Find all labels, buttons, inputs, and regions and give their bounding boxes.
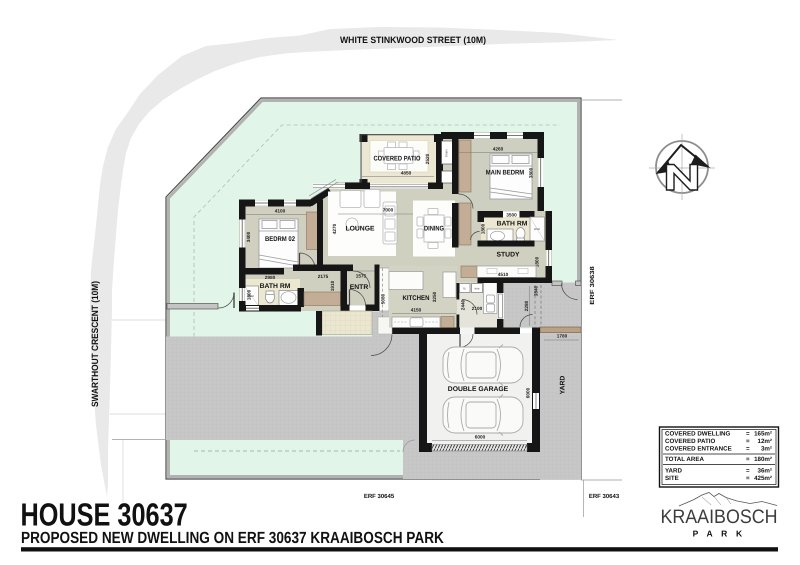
svg-text:=: = (746, 446, 750, 453)
svg-text:BEDRM 02: BEDRM 02 (265, 236, 295, 243)
svg-text:SWARTHOUT CRESCENT (10M): SWARTHOUT CRESCENT (10M) (90, 281, 100, 407)
svg-text:HOUSE 30637: HOUSE 30637 (21, 497, 188, 533)
svg-text:1800: 1800 (481, 223, 486, 234)
svg-text:3400: 3400 (246, 231, 251, 242)
svg-text:LOUNGE: LOUNGE (345, 226, 375, 233)
svg-text:6000: 6000 (475, 435, 486, 440)
svg-text:YARD: YARD (665, 468, 682, 475)
svg-text:=: = (746, 431, 750, 438)
svg-text:YARD: YARD (560, 376, 567, 395)
svg-text:1780: 1780 (557, 334, 568, 339)
svg-text:WHITE STINKWOOD STREET (10M): WHITE STINKWOOD STREET (10M) (340, 35, 486, 45)
svg-text:BATH RM: BATH RM (260, 283, 291, 290)
svg-text:wm: wm (475, 287, 480, 291)
svg-text:linen: linen (445, 149, 449, 156)
svg-text:3840: 3840 (534, 285, 539, 296)
svg-text:4150: 4150 (411, 308, 422, 313)
svg-text:2440: 2440 (461, 299, 466, 310)
svg-text:3800: 3800 (529, 167, 534, 178)
svg-text:=: = (746, 468, 750, 475)
svg-text:425m²: 425m² (754, 475, 772, 482)
svg-text:SITE: SITE (665, 475, 679, 482)
svg-text:DINING: DINING (424, 226, 444, 233)
svg-text:COVERED PATIO: COVERED PATIO (665, 438, 715, 445)
svg-text:=: = (746, 475, 750, 482)
svg-text:1910: 1910 (330, 280, 335, 291)
svg-text:=: = (746, 438, 750, 445)
svg-text:ERF 30638: ERF 30638 (589, 265, 596, 304)
svg-text:5080: 5080 (381, 293, 386, 304)
svg-text:6000: 6000 (526, 387, 531, 398)
svg-text:4260: 4260 (493, 147, 504, 152)
svg-text:4270: 4270 (332, 223, 337, 234)
svg-text:1800: 1800 (247, 289, 252, 300)
svg-text:4510: 4510 (498, 272, 509, 277)
svg-text:3250: 3250 (432, 291, 437, 302)
svg-text:1800: 1800 (535, 256, 540, 267)
svg-text:COVERED PATIO: COVERED PATIO (374, 156, 421, 163)
svg-text:4850: 4850 (401, 171, 412, 176)
svg-text:MAIN BEDRM: MAIN BEDRM (486, 170, 525, 177)
svg-text:2280: 2280 (524, 300, 529, 311)
svg-text:ERF 30643: ERF 30643 (589, 493, 620, 500)
svg-text:STUDY: STUDY (496, 252, 520, 259)
svg-text:shwr: shwr (534, 227, 540, 231)
svg-text:36m²: 36m² (758, 468, 772, 475)
svg-text:PROPOSED NEW DWELLING ON ERF 3: PROPOSED NEW DWELLING ON ERF 30637 KRAAI… (21, 529, 444, 547)
svg-text:2520: 2520 (425, 153, 430, 164)
svg-text:=: = (746, 456, 750, 463)
svg-text:2175: 2175 (318, 274, 329, 279)
svg-text:TOTAL AREA: TOTAL AREA (665, 456, 704, 463)
svg-text:COVERED DWELLING: COVERED DWELLING (665, 431, 731, 438)
svg-text:165m²: 165m² (754, 431, 772, 438)
svg-text:BATH RM: BATH RM (497, 221, 528, 228)
svg-text:7000: 7000 (383, 208, 394, 213)
svg-text:2100: 2100 (472, 306, 483, 311)
svg-text:KITCHEN: KITCHEN (403, 295, 430, 302)
svg-text:12m²: 12m² (758, 438, 772, 445)
svg-text:KRAAIBOSCH: KRAAIBOSCH (661, 506, 778, 528)
svg-text:4100: 4100 (275, 209, 286, 214)
svg-text:3500: 3500 (506, 213, 517, 218)
svg-text:ERF 30645: ERF 30645 (364, 493, 395, 500)
svg-text:COVERED ENTRANCE: COVERED ENTRANCE (665, 446, 732, 453)
svg-text:P A R K: P A R K (693, 529, 746, 539)
svg-text:DOUBLE GARAGE: DOUBLE GARAGE (448, 386, 509, 393)
svg-text:3m²: 3m² (761, 446, 772, 453)
svg-text:180m²: 180m² (754, 456, 772, 463)
